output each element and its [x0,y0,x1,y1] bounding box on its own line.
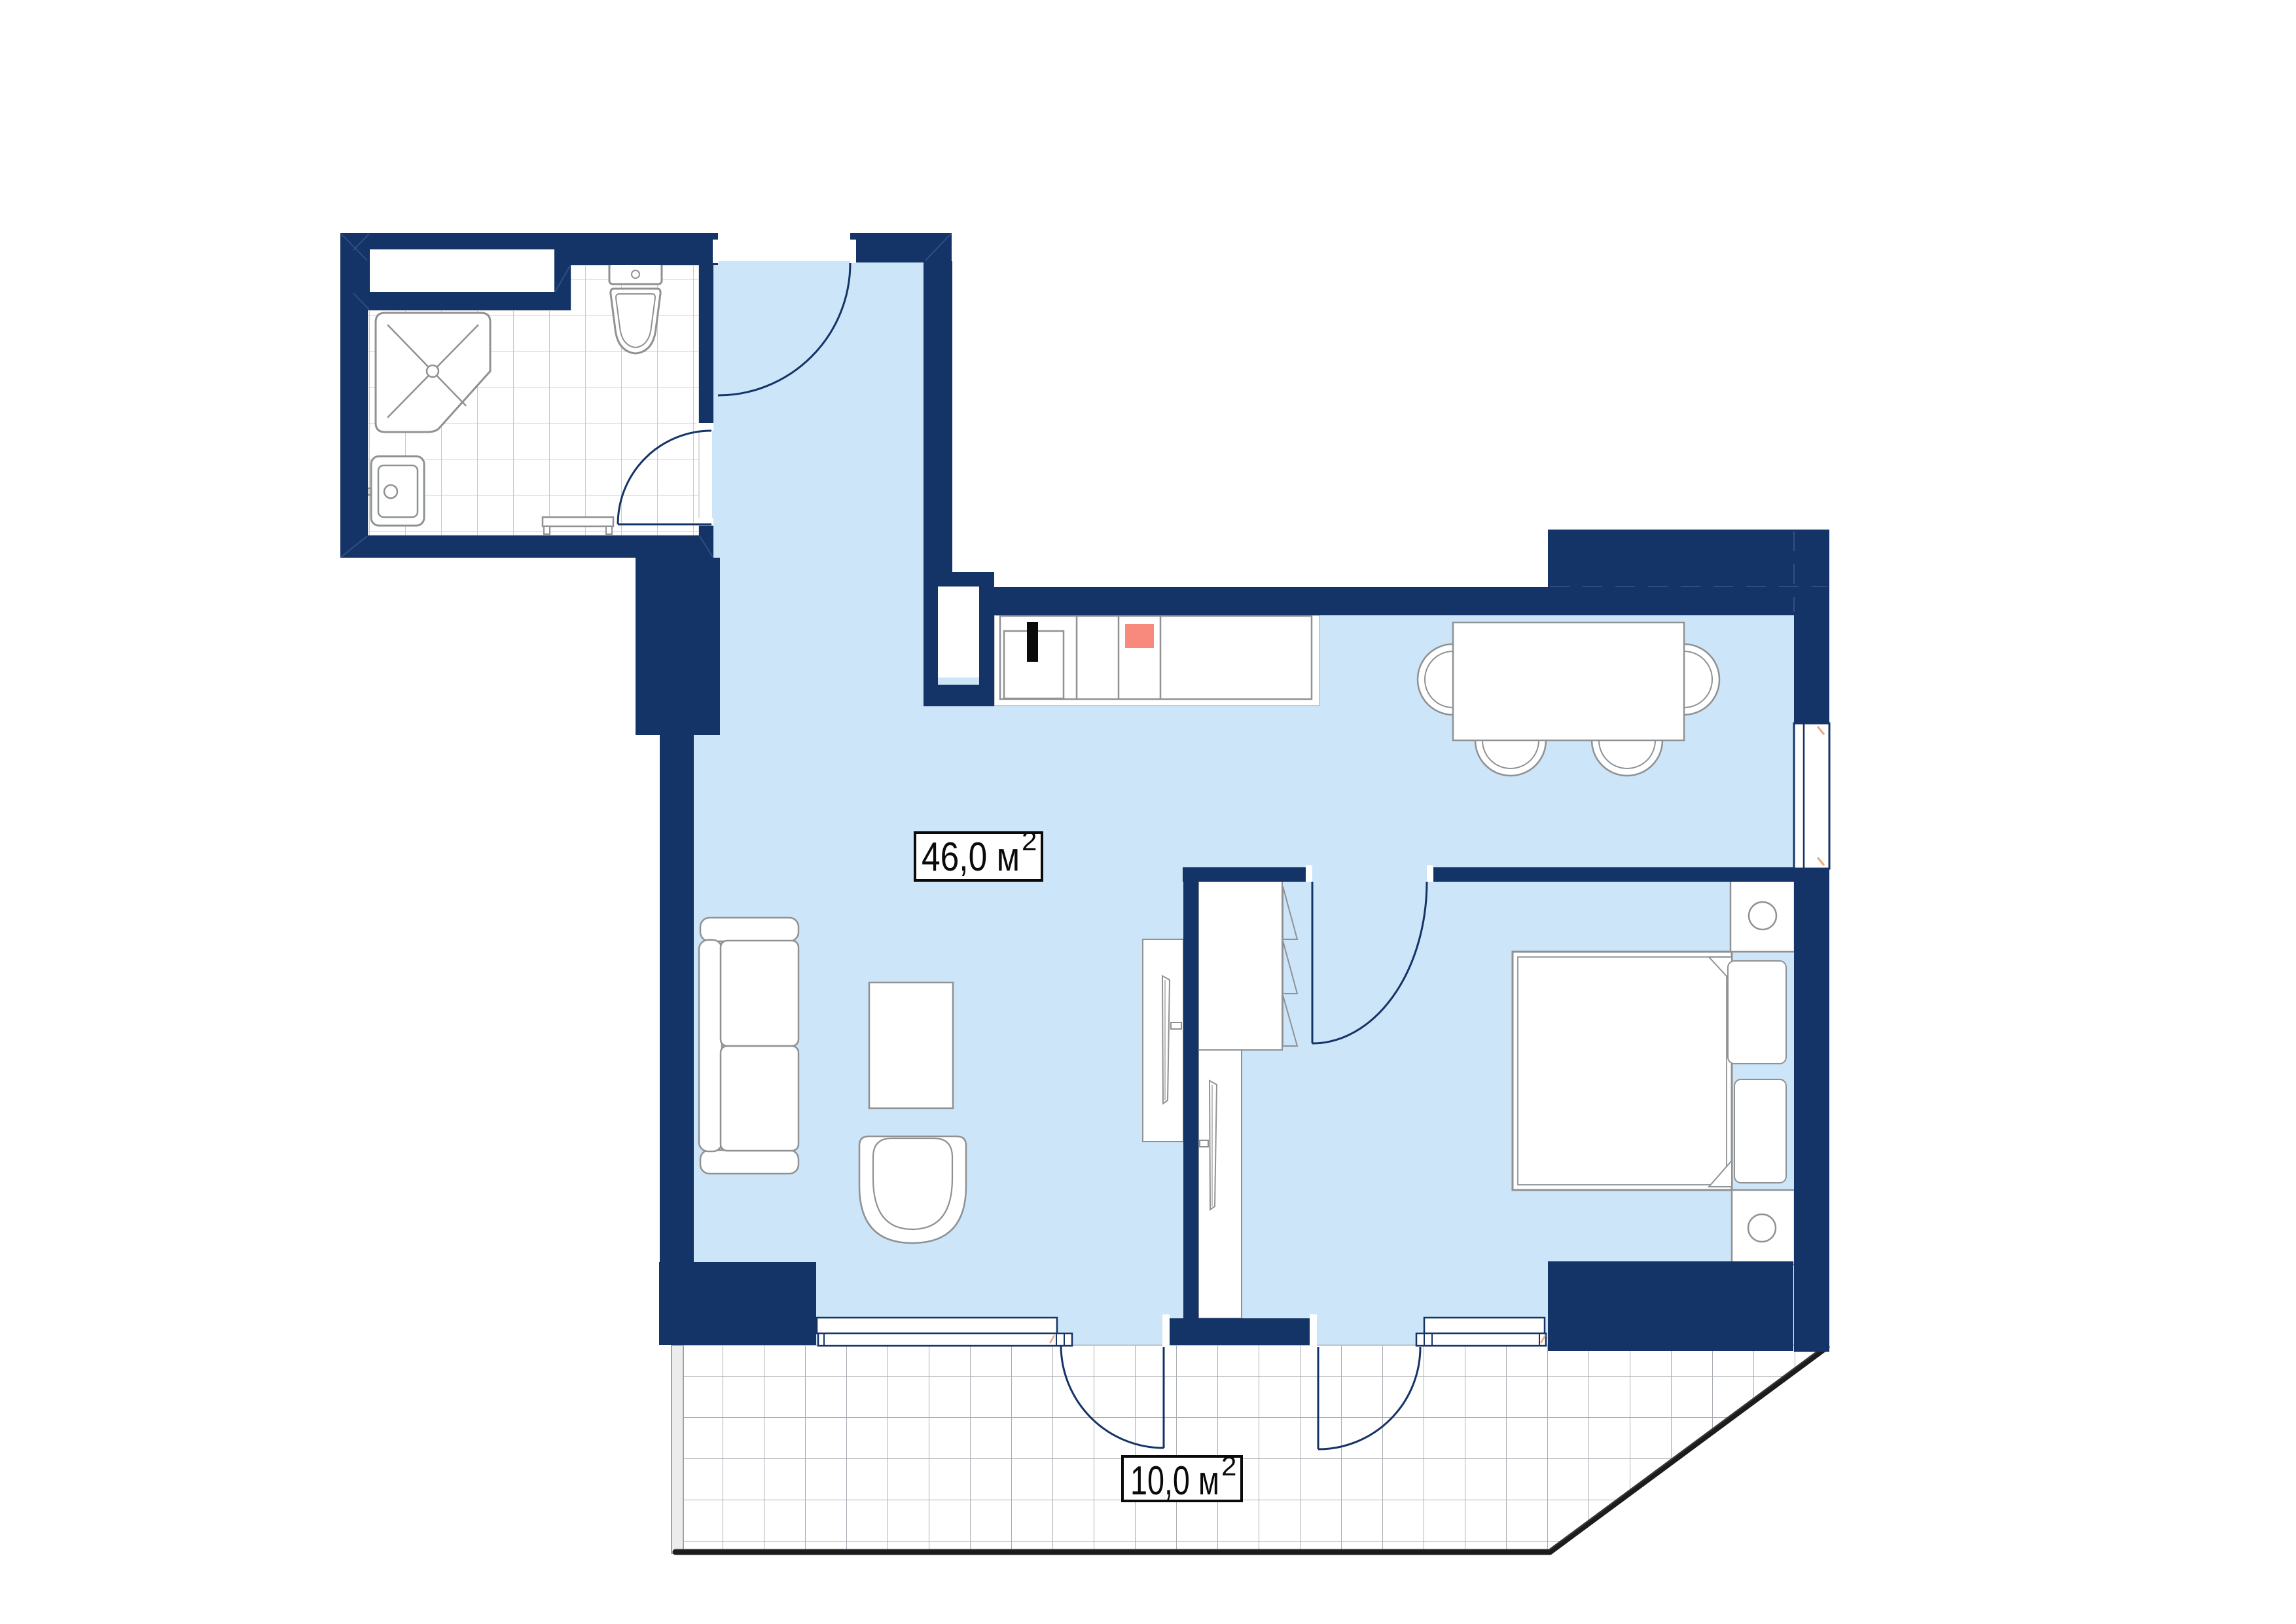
svg-text:2: 2 [1022,825,1037,856]
svg-text:46,0 м: 46,0 м [922,835,1020,880]
svg-text:2: 2 [1221,1451,1236,1481]
svg-text:10,0 м: 10,0 м [1130,1458,1219,1504]
